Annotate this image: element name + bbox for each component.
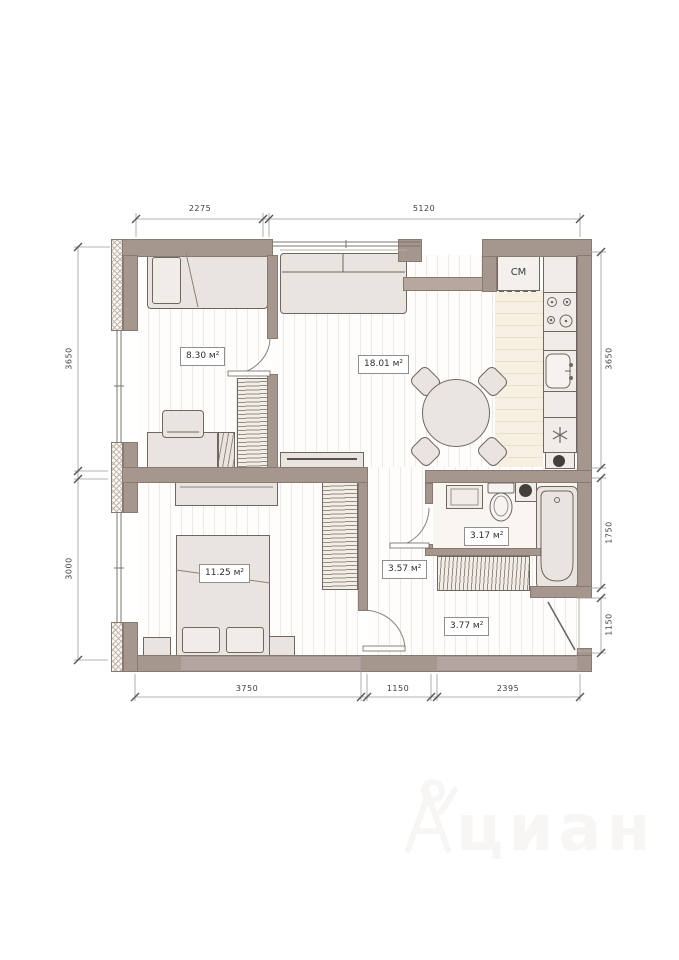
area-label-living-kitchen: 18.01 м² [358, 355, 409, 374]
single-bed-pillow [152, 257, 181, 304]
wall-duct [403, 277, 483, 291]
wall-room-right [267, 374, 278, 468]
wardrobe-master-bedroom [322, 482, 358, 590]
wall-bedroom-hall [358, 482, 368, 611]
dim-right-1150: 1150 [605, 595, 614, 655]
wall-bath-bottom [425, 548, 541, 556]
area-label-entry: 3.77 м² [444, 617, 489, 636]
water-heater-dot [519, 484, 532, 497]
entry-wardrobe [437, 556, 530, 591]
window-left-lower [114, 513, 124, 622]
area-label-bathroom: 3.17 м² [464, 527, 509, 546]
washing-machine-label: СМ [511, 267, 527, 278]
wall-bath-left [425, 483, 433, 504]
dim-bottom-1150: 1150 [368, 684, 428, 693]
dim-top-5120: 5120 [394, 204, 454, 213]
kitchen-counter [543, 391, 577, 418]
wall-segment [482, 239, 592, 257]
floor-plan-canvas: циан СМ [0, 0, 679, 960]
kitchen-end-unit-dot [553, 455, 565, 467]
wall-pier-left [123, 622, 138, 672]
dim-bottom-3750: 3750 [217, 684, 277, 693]
wall-room-right [267, 255, 278, 339]
wall-under-tub [530, 586, 592, 598]
watermark-text: циан [456, 792, 656, 866]
dresser [175, 482, 278, 506]
balcony-wall-hatch [111, 239, 123, 331]
kitchen-counter [543, 331, 577, 351]
wall-right [577, 255, 592, 588]
wall-bathroom-top [425, 470, 592, 483]
bathtub [536, 486, 578, 589]
window-left-upper [114, 330, 124, 442]
bathroom-cabinet [446, 485, 483, 509]
washing-machine: СМ [497, 253, 540, 291]
dim-top-2275: 2275 [170, 204, 230, 213]
watermark-person-icon [408, 782, 455, 850]
dining-table [422, 379, 490, 447]
double-bed-pillow [226, 627, 264, 653]
area-label-bedroom-master: 11.25 м² [199, 564, 250, 583]
wall-pier [482, 256, 497, 292]
wall-bottom-inset [181, 657, 361, 670]
area-label-hallway: 3.57 м² [382, 560, 427, 579]
wall-bottom-inset [437, 657, 577, 670]
area-label-bedroom-small: 8.30 м² [180, 347, 225, 366]
dim-right-1750: 1750 [605, 503, 614, 563]
tv-console [280, 452, 364, 468]
desk-chair [162, 410, 204, 438]
dim-left-3650: 3650 [65, 329, 74, 389]
kitchen-sink-unit [543, 350, 577, 392]
balcony-wall-hatch [111, 442, 123, 513]
sofa [280, 253, 407, 314]
kitchen-cabinet [543, 253, 577, 293]
fridge [543, 417, 577, 453]
wall-segment [398, 239, 422, 262]
wall-divider [111, 467, 368, 483]
dim-left-3000: 3000 [65, 539, 74, 599]
dim-right-3650: 3650 [605, 329, 614, 389]
balcony-wall-hatch [111, 622, 123, 672]
dim-bottom-2395: 2395 [478, 684, 538, 693]
double-bed-pillow [182, 627, 220, 653]
wall-pier-left [123, 255, 138, 331]
small-cabinet [218, 432, 235, 470]
stove [543, 292, 577, 332]
